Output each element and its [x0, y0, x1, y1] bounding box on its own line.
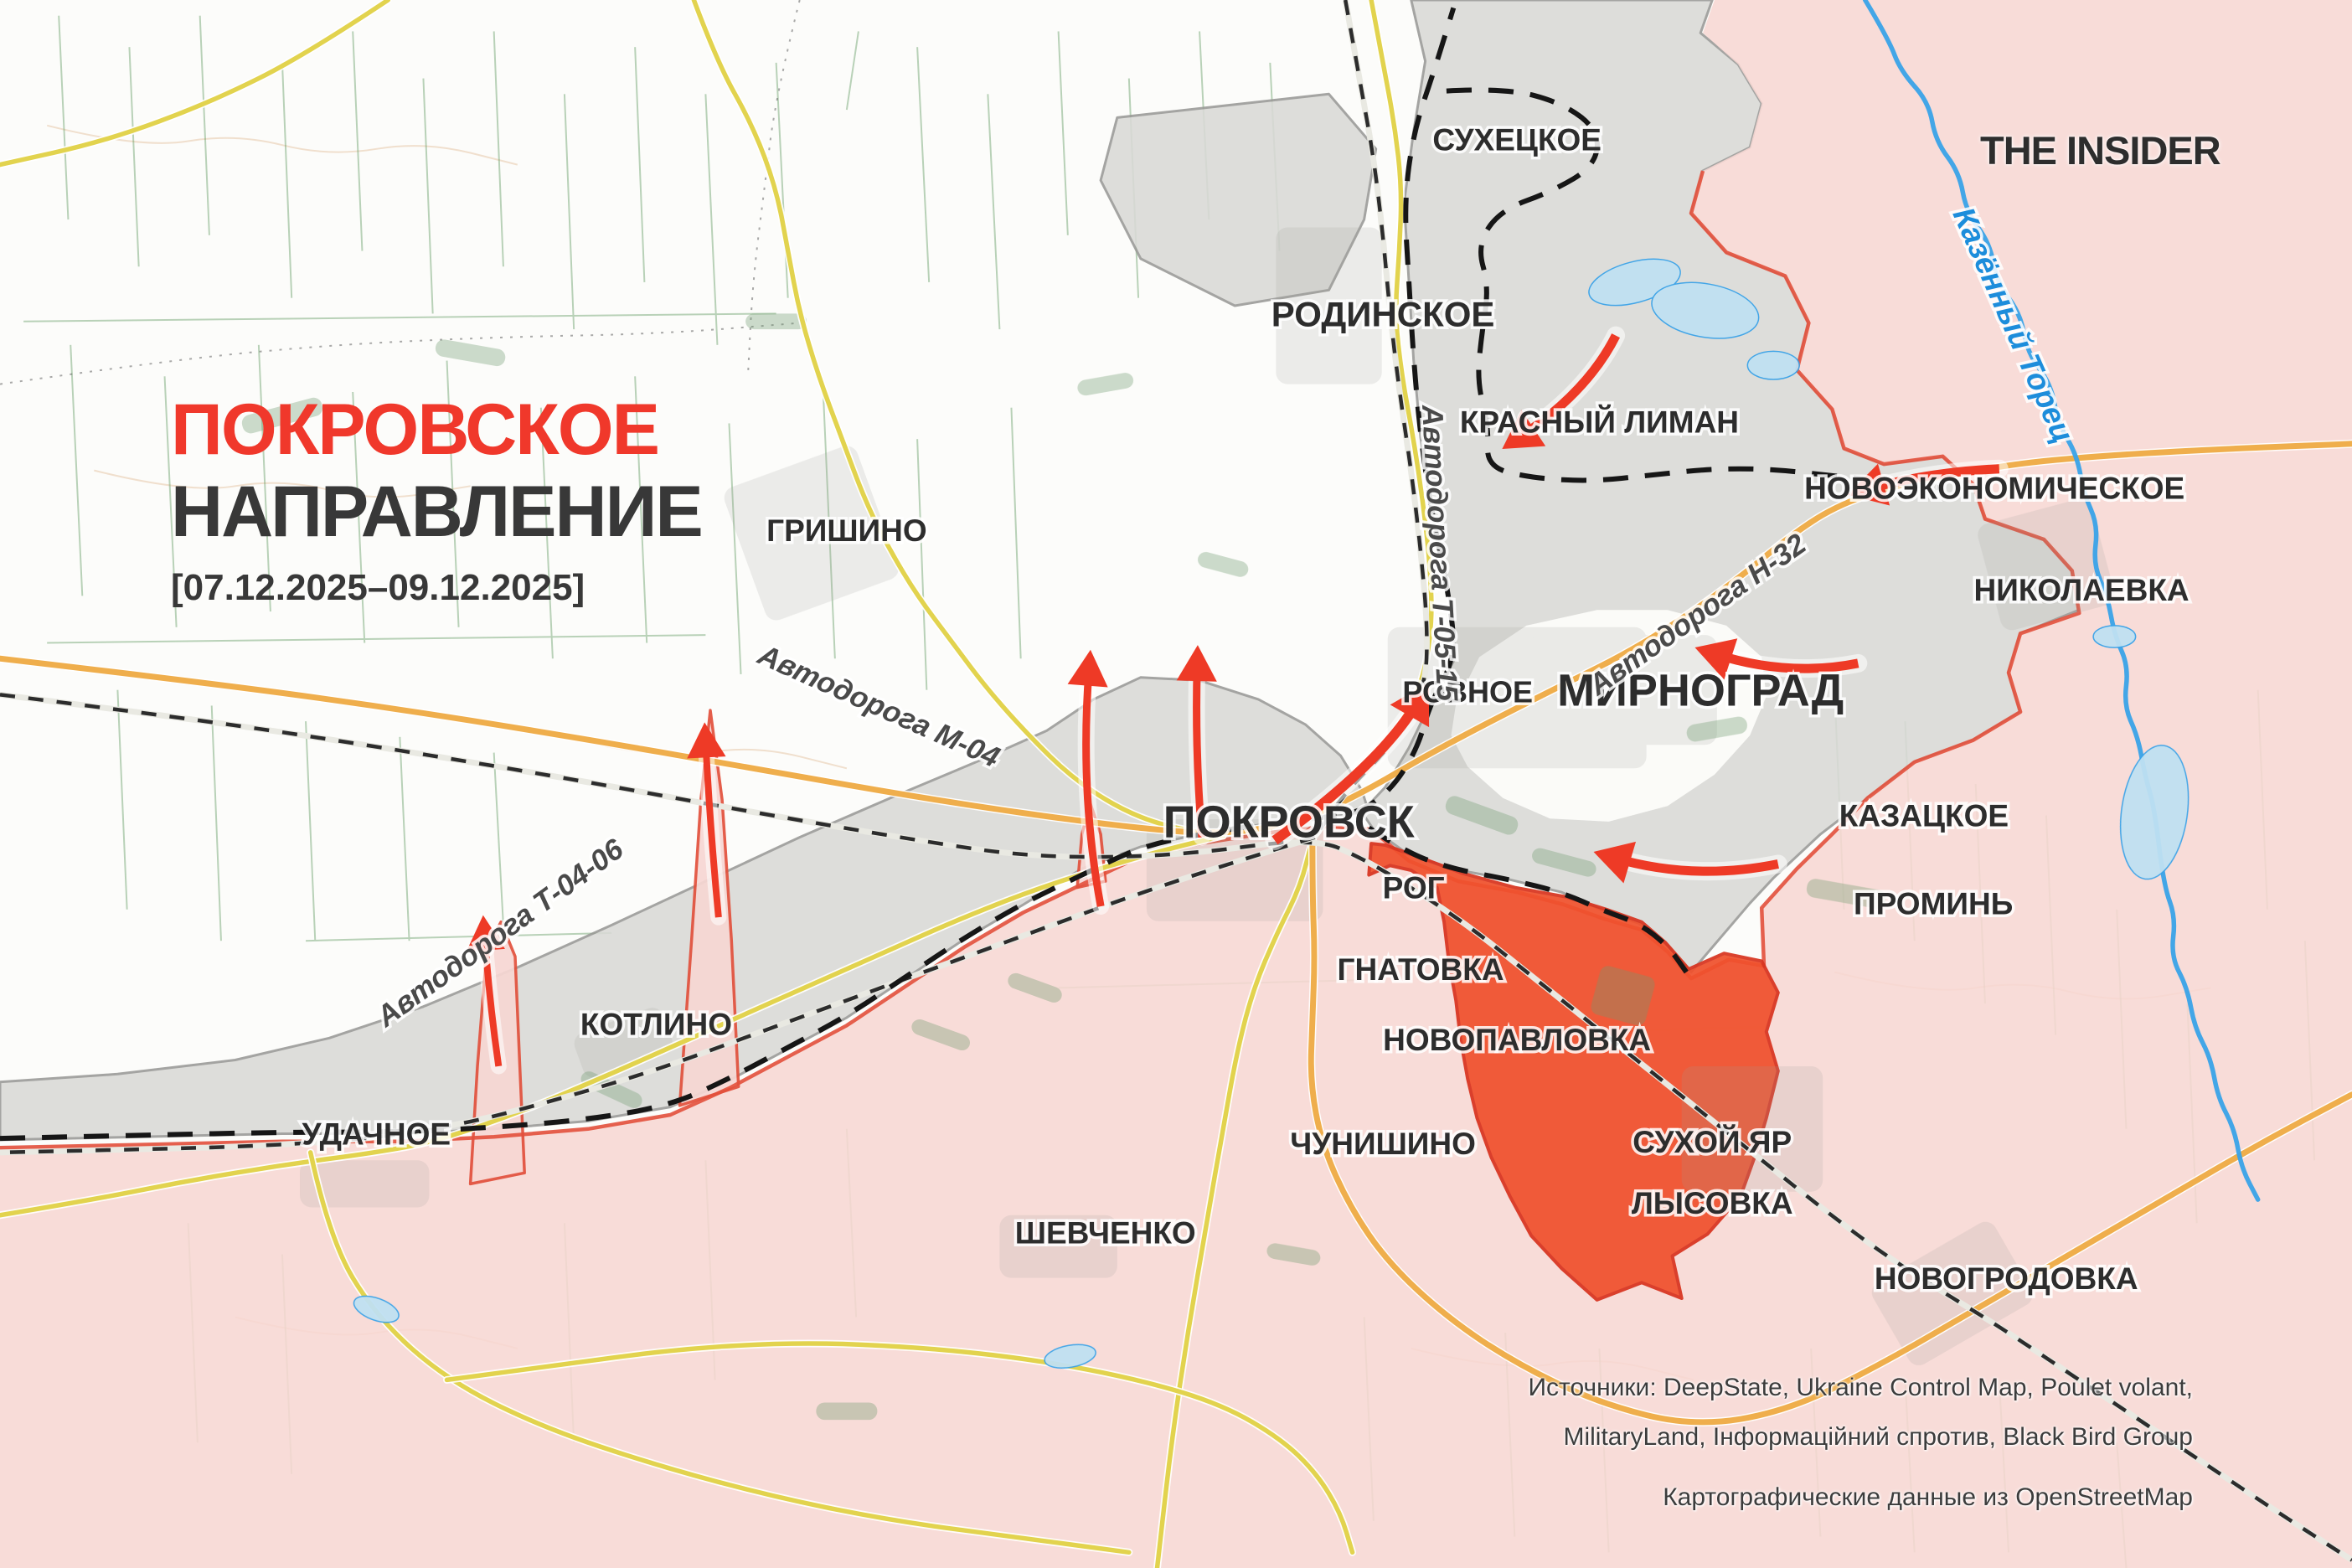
settlement-label: РОВНОЕ — [1402, 675, 1533, 709]
settlement-label: СУХОЙ ЯР — [1632, 1124, 1792, 1159]
settlement-label: ГНАТОВКА — [1338, 952, 1504, 987]
settlement-label: КАЗАЦКОЕ — [1839, 799, 2009, 833]
settlement-label: НОВОЭКОНОМИЧЕСКОЕ — [1804, 471, 2184, 505]
lake — [1747, 351, 1799, 379]
map-canvas: СУХЕЦКОЕРОДИНСКОЕКРАСНЫЙ ЛИМАННОВОЭКОНОМ… — [0, 0, 2352, 1568]
settlement-label: КОТЛИНО — [580, 1008, 732, 1042]
settlement-label: ЧУНИШИНО — [1290, 1127, 1476, 1161]
settlement-label: КРАСНЫЙ ЛИМАН — [1460, 405, 1739, 440]
settlement-label: ЛЫСОВКА — [1632, 1186, 1793, 1220]
settlement-label: РОГ — [1383, 871, 1445, 905]
lake — [2093, 626, 2136, 647]
settlement-label: НОВОПАВЛОВКА — [1383, 1023, 1651, 1057]
settlement-label: РОДИНСКОЕ — [1271, 294, 1495, 333]
settlement-label: ШЕВЧЕНКО — [1015, 1215, 1196, 1250]
settlement-label: НОВОГРОДОВКА — [1875, 1261, 2138, 1296]
settlement-label: ПОКРОВСК — [1163, 797, 1416, 848]
settlement-label: ПРОМИНЬ — [1854, 886, 2013, 921]
settlement-label: СУХЕЦКОЕ — [1432, 123, 1602, 157]
forest-patch — [816, 1403, 877, 1421]
map-infographic: СУХЕЦКОЕРОДИНСКОЕКРАСНЫЙ ЛИМАННОВОЭКОНОМ… — [0, 0, 2352, 1568]
settlement-label: УДАЧНОЕ — [302, 1117, 451, 1152]
settlement-label: НИКОЛАЕВКА — [1974, 573, 2190, 607]
settlement-label: ГРИШИНО — [766, 513, 927, 548]
